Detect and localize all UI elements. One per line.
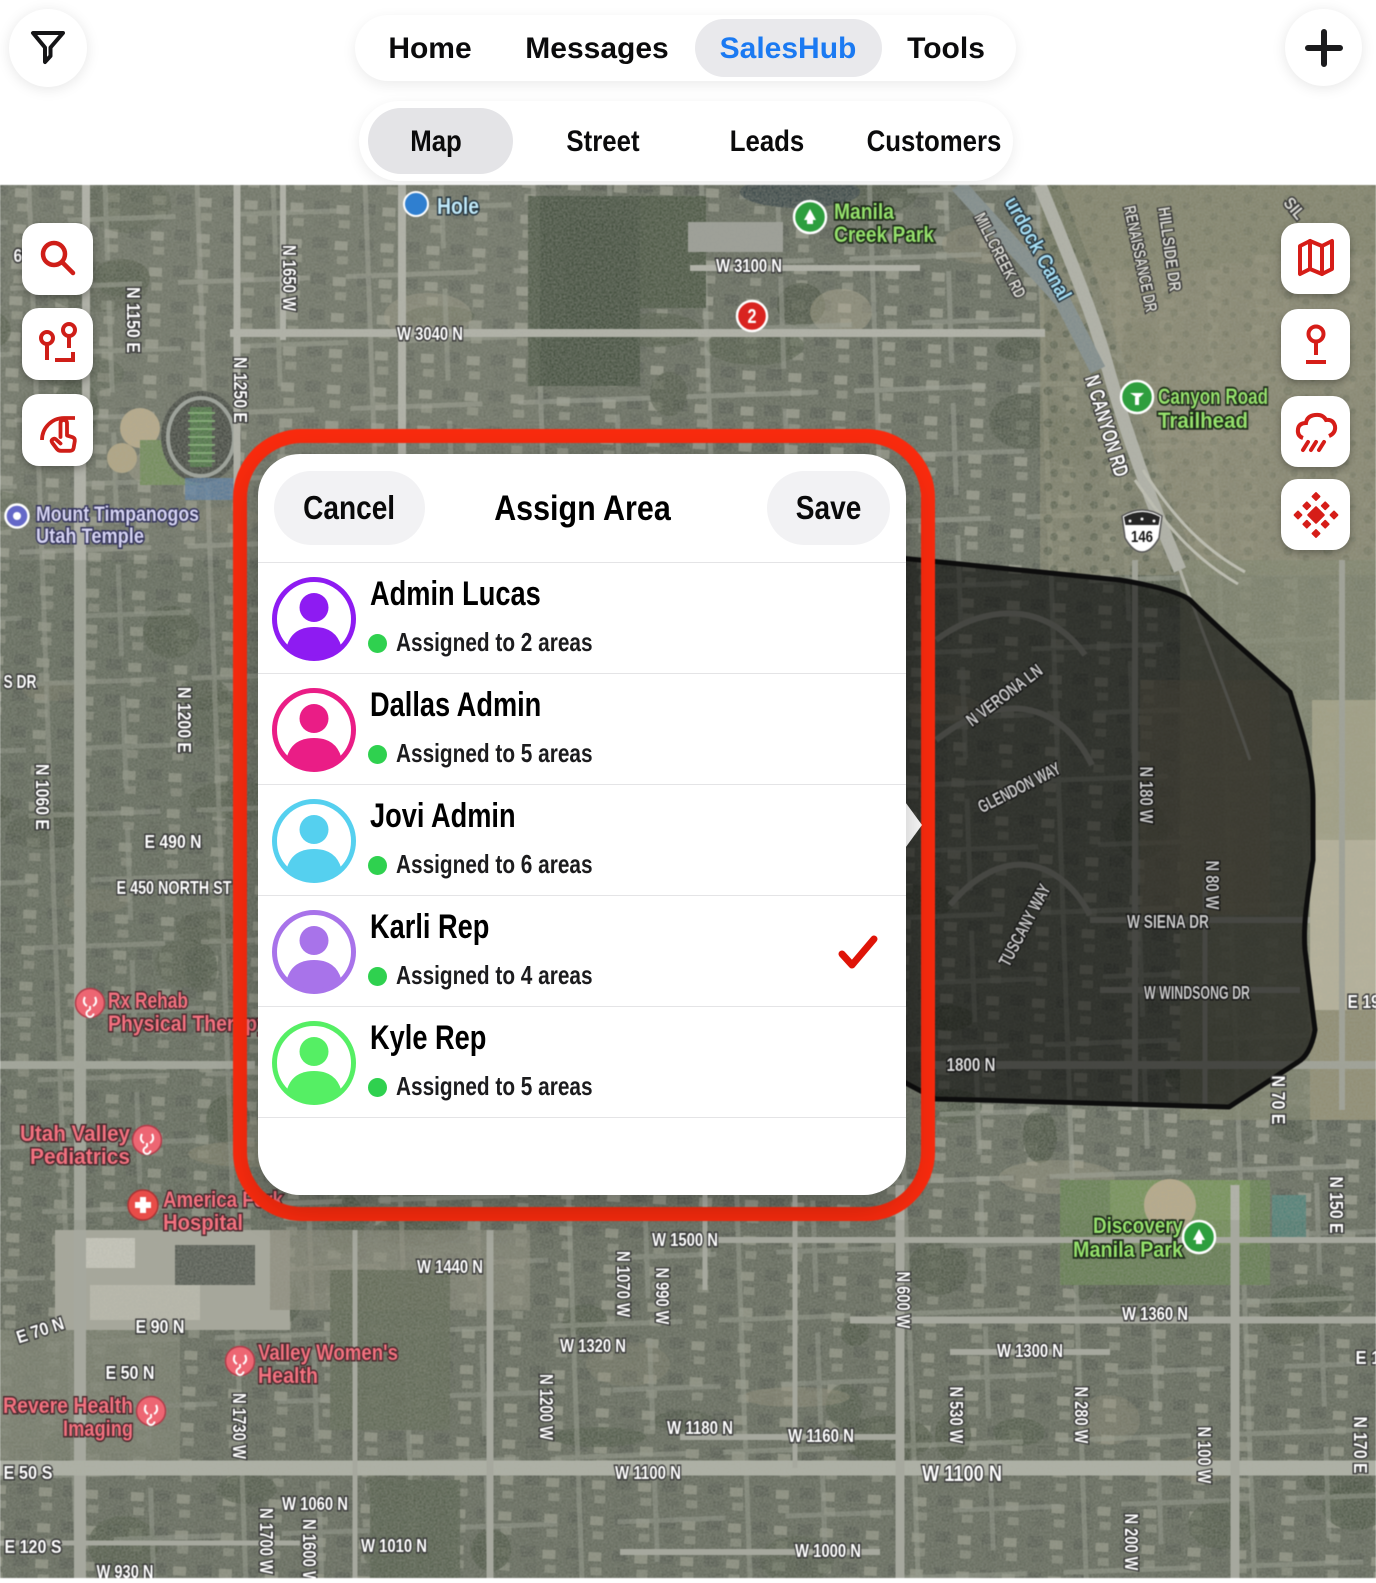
svg-text:N 1730 W: N 1730 W: [229, 1393, 249, 1459]
svg-text:W 1180 N: W 1180 N: [667, 1418, 733, 1438]
svg-text:N 1070 W: N 1070 W: [613, 1251, 633, 1317]
svg-text:E 450 NORTH ST: E 450 NORTH ST: [117, 878, 232, 898]
svg-text:W SIENA DR: W SIENA DR: [1127, 912, 1209, 932]
svg-text:W 1320 N: W 1320 N: [560, 1336, 626, 1356]
svg-text:E 50 N: E 50 N: [106, 1363, 155, 1383]
svg-text:W 1500 N: W 1500 N: [652, 1230, 718, 1250]
svg-text:N 1600 W: N 1600 W: [299, 1519, 319, 1578]
svg-text:W WINDSONG DR: W WINDSONG DR: [1144, 983, 1250, 1003]
svg-text:W 1440 N: W 1440 N: [417, 1257, 483, 1277]
svg-text:W 1100 N: W 1100 N: [615, 1463, 681, 1483]
svg-text:W 1160 N: W 1160 N: [788, 1426, 854, 1446]
svg-text:N 990 W: N 990 W: [652, 1268, 672, 1325]
svg-text:W 1000 N: W 1000 N: [795, 1541, 861, 1561]
svg-text:Revere Health: Revere Health: [3, 1393, 133, 1418]
svg-text:Manila Park: Manila Park: [1073, 1237, 1184, 1262]
svg-text:Hole: Hole: [437, 193, 479, 219]
svg-text:Creek Park: Creek Park: [834, 222, 935, 247]
svg-text:Rx Rehab: Rx Rehab: [108, 988, 188, 1013]
svg-text:Imaging: Imaging: [63, 1416, 133, 1441]
svg-text:W 930 N: W 930 N: [97, 1562, 154, 1578]
svg-text:W 3100 N: W 3100 N: [716, 256, 782, 276]
svg-text:N 150 E: N 150 E: [1326, 1177, 1346, 1234]
svg-text:Mount Timpanogos: Mount Timpanogos: [36, 503, 199, 526]
svg-text:N 70 E: N 70 E: [1268, 1076, 1288, 1125]
svg-text:2: 2: [748, 306, 757, 328]
svg-text:W 1360 N: W 1360 N: [1122, 1304, 1188, 1324]
svg-text:N 80 W: N 80 W: [1202, 861, 1222, 910]
svg-text:N 180 W: N 180 W: [1136, 767, 1156, 824]
svg-text:E 50 S: E 50 S: [4, 1463, 53, 1483]
svg-text:N 170 E: N 170 E: [1350, 1417, 1370, 1474]
svg-text:146: 146: [1131, 529, 1153, 546]
svg-text:N 1650 W: N 1650 W: [279, 245, 299, 311]
svg-text:N 100 W: N 100 W: [1194, 1427, 1214, 1484]
svg-text:N 600 W: N 600 W: [893, 1272, 913, 1329]
svg-text:W 1060 N: W 1060 N: [282, 1494, 348, 1514]
svg-text:N 1250 E: N 1250 E: [230, 357, 250, 423]
svg-text:E 490 N: E 490 N: [145, 832, 202, 852]
svg-text:Utah Temple: Utah Temple: [36, 525, 144, 548]
svg-text:N 1200 E: N 1200 E: [174, 687, 194, 753]
svg-text:Utah Valley: Utah Valley: [20, 1121, 131, 1146]
svg-text:Manila: Manila: [834, 199, 895, 224]
svg-text:Health: Health: [258, 1363, 318, 1388]
svg-text:W 1100 N: W 1100 N: [922, 1461, 1002, 1486]
svg-text:E 192: E 192: [1348, 992, 1376, 1012]
svg-text:Hospital: Hospital: [163, 1210, 243, 1235]
svg-text:Trailhead: Trailhead: [1158, 408, 1248, 433]
svg-text:W 1300 N: W 1300 N: [997, 1341, 1063, 1361]
svg-text:Valley Women's: Valley Women's: [258, 1340, 398, 1365]
svg-text:W 1010 N: W 1010 N: [361, 1536, 427, 1556]
svg-text:N 1200 W: N 1200 W: [536, 1374, 556, 1440]
svg-text:N 1700 W: N 1700 W: [256, 1508, 276, 1574]
svg-text:W 3040 N: W 3040 N: [397, 324, 463, 344]
svg-text:E 1: E 1: [1356, 1348, 1376, 1368]
svg-text:N 530 W: N 530 W: [946, 1387, 966, 1444]
svg-text:Canyon Road: Canyon Road: [1158, 384, 1268, 409]
svg-text:N 1150 E: N 1150 E: [123, 287, 143, 353]
svg-text:Discovery: Discovery: [1093, 1213, 1184, 1238]
svg-text:N 200 W: N 200 W: [1121, 1514, 1141, 1571]
svg-text:1800 N: 1800 N: [947, 1055, 996, 1075]
svg-text:Pediatrics: Pediatrics: [30, 1144, 130, 1169]
svg-text:N 1060 E: N 1060 E: [32, 764, 52, 830]
svg-text:E 90 N: E 90 N: [136, 1317, 185, 1337]
svg-text:E 120 S: E 120 S: [5, 1537, 62, 1557]
svg-text:S DR: S DR: [4, 672, 37, 692]
svg-text:N 280 W: N 280 W: [1071, 1387, 1091, 1444]
